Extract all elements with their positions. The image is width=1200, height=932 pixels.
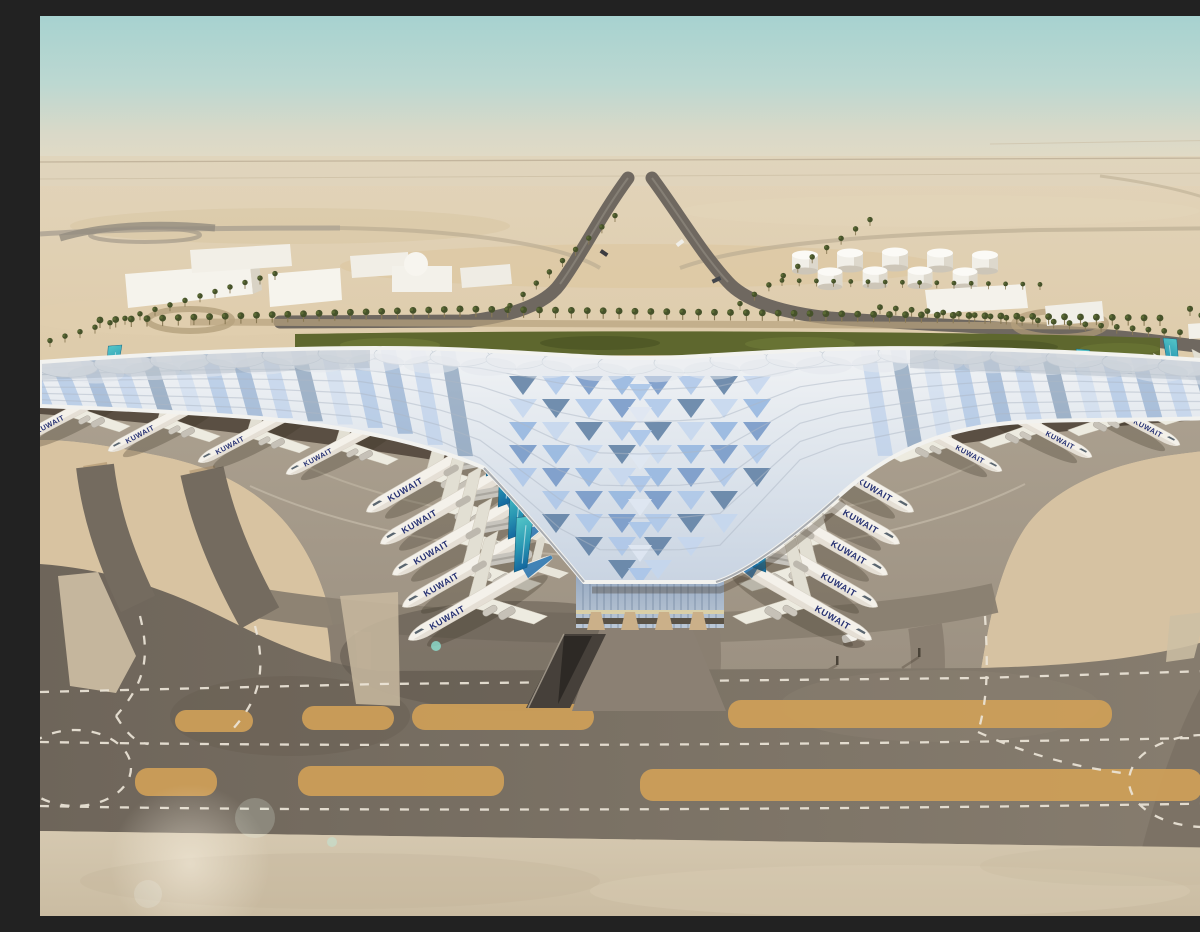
gold-strip xyxy=(302,706,394,730)
rendering-canvas: KUWAITKUWAITKUWAITKUWAITKUWAITKUWAITKUWA… xyxy=(40,16,1200,916)
gold-strip xyxy=(640,769,1200,801)
apron-pole xyxy=(918,648,921,657)
flare-dot xyxy=(431,641,441,651)
gold-strip xyxy=(298,766,504,796)
apron-pole xyxy=(836,656,839,665)
gold-strip xyxy=(728,700,1112,728)
airport-aerial-rendering: KUWAITKUWAITKUWAITKUWAITKUWAITKUWAITKUWA… xyxy=(40,16,1200,916)
gold-strip xyxy=(175,710,253,732)
